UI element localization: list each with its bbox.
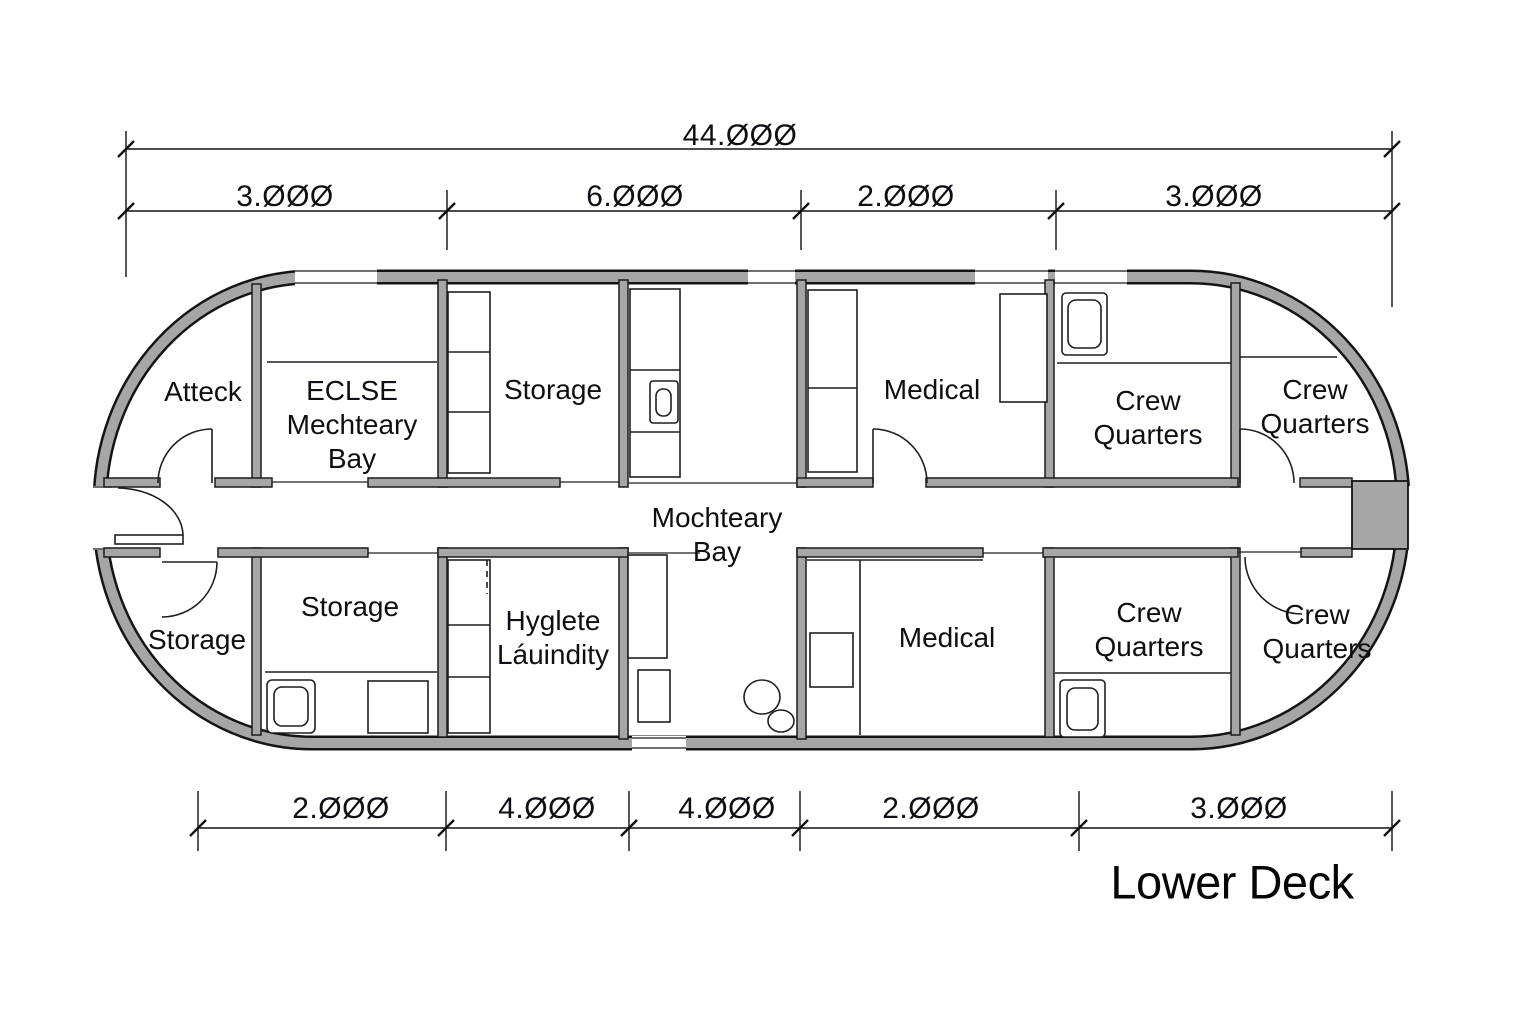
dimension-bottom-4: 2.ØØØ <box>882 794 980 824</box>
dimension-top-4: 3.ØØØ <box>1165 182 1263 212</box>
room-label-atteck: Atteck <box>164 375 242 409</box>
room-label-crew-quarters-top-middle: Crew Quarters <box>1094 384 1203 452</box>
dimension-top-2: 6.ØØØ <box>586 182 684 212</box>
dimension-bottom-2: 4.ØØØ <box>498 794 596 824</box>
room-label-eclse-mechteary-bay: ECLSE Mechteary Bay <box>287 374 418 476</box>
room-label-storage-bottom: Storage <box>301 590 399 624</box>
room-label-medical-bottom: Medical <box>899 621 995 655</box>
dimension-bottom-1: 2.ØØØ <box>292 794 390 824</box>
dimension-bottom-3: 4.ØØØ <box>678 794 776 824</box>
room-label-crew-quarters-bottom-right: Crew Quarters <box>1263 598 1372 666</box>
deck-title: Lower Deck <box>1110 859 1353 906</box>
room-label-storage-top: Storage <box>504 373 602 407</box>
dimension-overall: 44.ØØØ <box>683 121 798 151</box>
dimension-bottom-5: 3.ØØØ <box>1190 794 1288 824</box>
floorplan-page: 44.ØØØ 3.ØØØ 6.ØØØ 2.ØØØ 3.ØØØ 2.ØØØ 4.Ø… <box>0 0 1536 1024</box>
dimension-top-3: 2.ØØØ <box>857 182 955 212</box>
room-label-crew-quarters-bottom-middle: Crew Quarters <box>1095 596 1204 664</box>
room-label-crew-quarters-top-right: Crew Quarters <box>1261 373 1370 441</box>
room-label-storage-bottom-left: Storage <box>148 623 246 657</box>
room-label-mochteary-bay: Mochteary Bay <box>652 501 783 569</box>
dimension-top-1: 3.ØØØ <box>236 182 334 212</box>
room-label-hyglete-laundry: Hyglete Láuindity <box>497 604 609 672</box>
room-label-medical-top: Medical <box>884 373 980 407</box>
label-layer: 44.ØØØ 3.ØØØ 6.ØØØ 2.ØØØ 3.ØØØ 2.ØØØ 4.Ø… <box>0 0 1536 1024</box>
